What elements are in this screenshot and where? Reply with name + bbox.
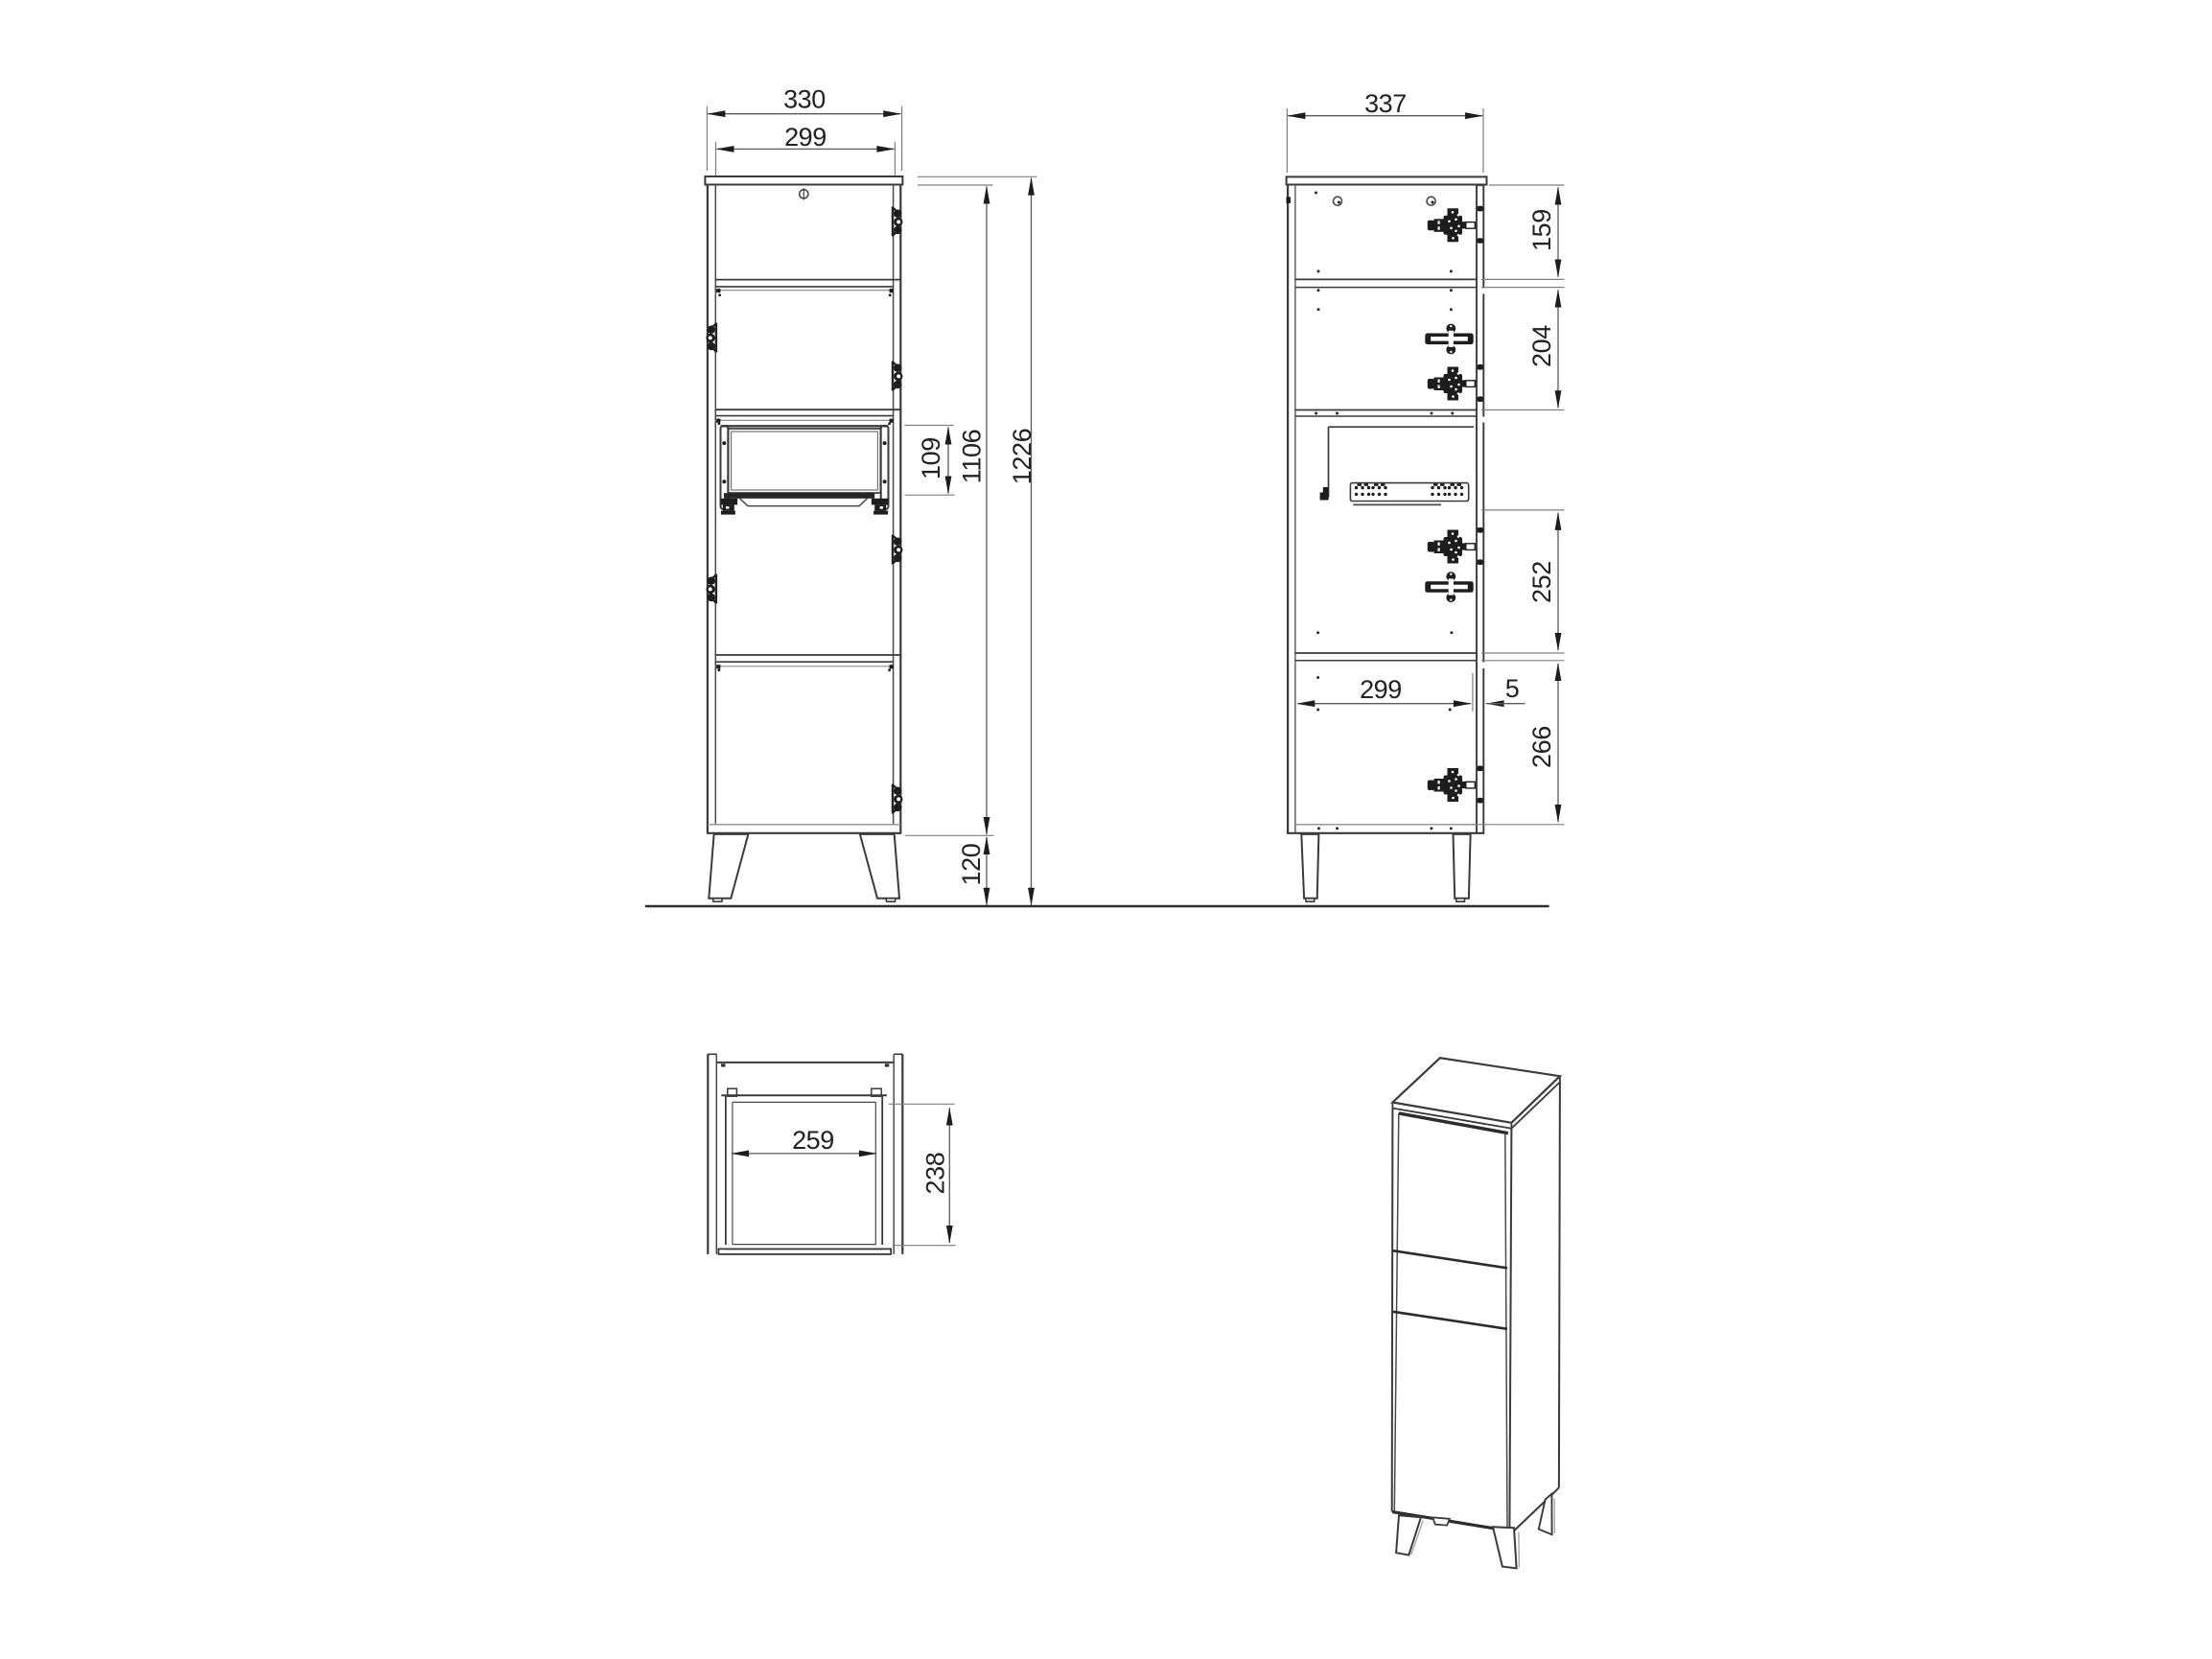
svg-text:1106: 1106 xyxy=(958,430,987,483)
svg-text:299: 299 xyxy=(1360,675,1402,704)
svg-text:266: 266 xyxy=(1527,726,1556,768)
svg-text:337: 337 xyxy=(1364,89,1407,118)
svg-text:159: 159 xyxy=(1527,209,1556,251)
svg-text:259: 259 xyxy=(792,1126,834,1155)
svg-text:5: 5 xyxy=(1505,674,1520,703)
svg-text:1226: 1226 xyxy=(1008,429,1036,484)
svg-text:238: 238 xyxy=(921,1153,950,1195)
svg-text:299: 299 xyxy=(784,123,827,152)
svg-text:330: 330 xyxy=(783,84,826,113)
svg-text:109: 109 xyxy=(917,437,945,479)
svg-text:120: 120 xyxy=(957,844,986,886)
svg-text:252: 252 xyxy=(1527,561,1556,603)
svg-text:204: 204 xyxy=(1527,325,1556,367)
